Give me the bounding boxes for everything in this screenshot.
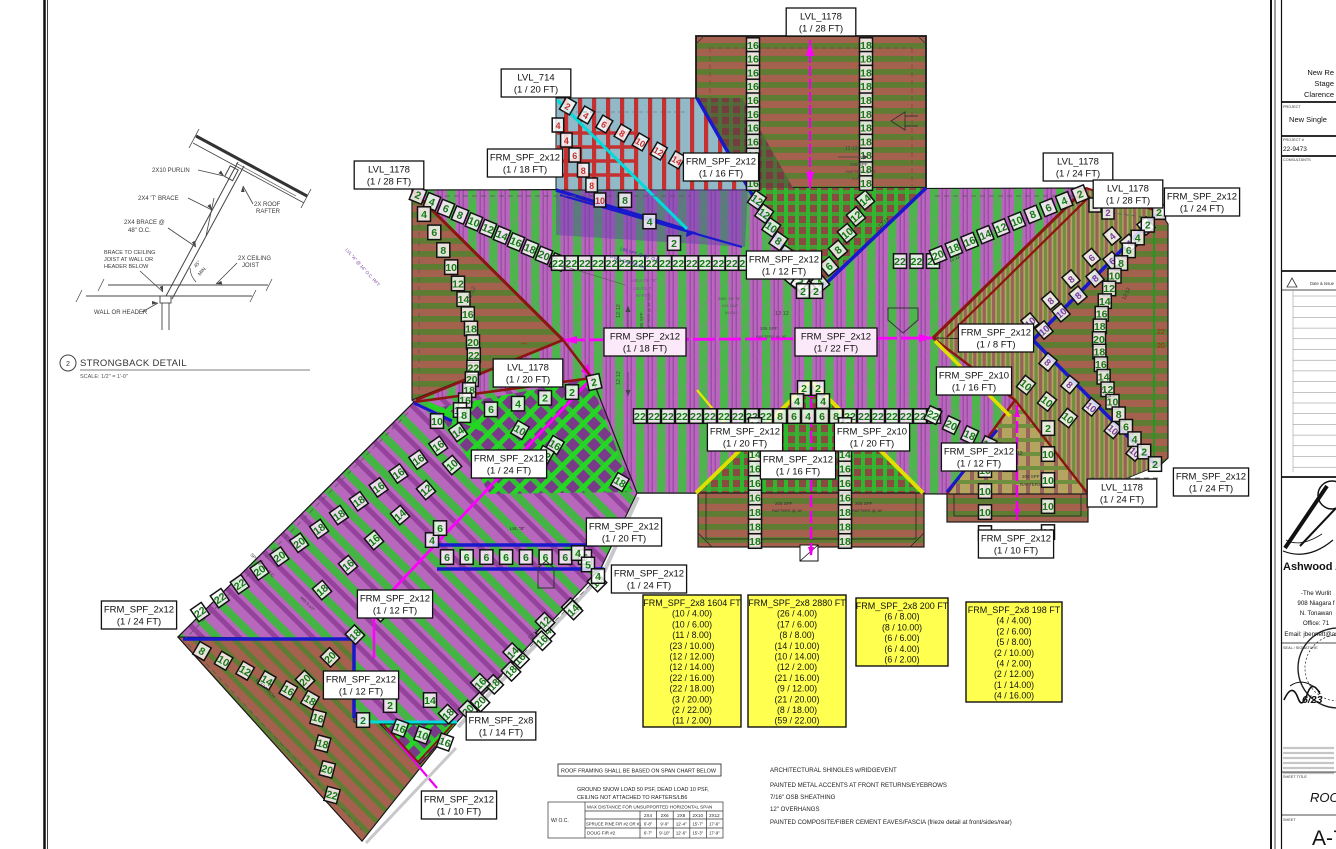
svg-text:Date & Issue: Date & Issue	[1310, 281, 1335, 286]
svg-text:22-9473: 22-9473	[1283, 146, 1307, 153]
svg-text:18: 18	[749, 507, 761, 519]
svg-text:FRM_SPF_2x12: FRM_SPF_2x12	[1176, 472, 1246, 483]
svg-text:SPRUCE PINE FIR #2 OR #1: SPRUCE PINE FIR #2 OR #1	[586, 822, 642, 827]
svg-text:18: 18	[860, 136, 872, 148]
svg-text:AREA OF "B": AREA OF "B"	[630, 278, 657, 283]
svg-text:15'-3": 15'-3"	[692, 831, 703, 836]
svg-text:FRM_SPF_2x12: FRM_SPF_2x12	[610, 332, 680, 343]
svg-text:4: 4	[647, 216, 653, 228]
svg-text:PAINTED METAL ACCENTS AT FRONT: PAINTED METAL ACCENTS AT FRONT RETURNS/E…	[770, 782, 947, 789]
svg-text:(1 / 28 FT): (1 / 28 FT)	[367, 177, 411, 188]
svg-text:6: 6	[791, 411, 797, 423]
svg-text:(4 / 4.00): (4 / 4.00)	[996, 616, 1031, 626]
svg-text:4: 4	[515, 398, 521, 410]
svg-text:8: 8	[461, 410, 467, 422]
svg-text:LVL_714: LVL_714	[517, 73, 554, 84]
svg-text:22: 22	[726, 258, 738, 270]
svg-text:(1 / 24 FT): (1 / 24 FT)	[1056, 169, 1100, 180]
svg-text:LVL_1178: LVL_1178	[368, 165, 410, 176]
svg-text:Ashwood Ar: Ashwood Ar	[1283, 561, 1336, 573]
svg-text:2: 2	[66, 361, 70, 368]
svg-text:(1 / 24 FT): (1 / 24 FT)	[1189, 484, 1233, 495]
svg-text:WALL OR HEADER: WALL OR HEADER	[94, 310, 148, 316]
svg-text:FRM_SPF_2x12: FRM_SPF_2x12	[104, 605, 174, 616]
svg-text:22: 22	[592, 258, 604, 270]
svg-text:2: 2	[815, 383, 821, 395]
svg-text:(8 / 10.00): (8 / 10.00)	[882, 622, 922, 632]
svg-text:(1 / 16 FT): (1 / 16 FT)	[699, 169, 743, 180]
svg-text:(6 / 6.00): (6 / 6.00)	[884, 633, 919, 643]
svg-text:4: 4	[564, 136, 569, 146]
svg-text:48" O.C.: 48" O.C.	[128, 228, 151, 234]
svg-text:17'-6": 17'-6"	[709, 822, 720, 827]
svg-text:(12 / 12.00): (12 / 12.00)	[670, 652, 715, 662]
svg-text:(8 / 8.00): (8 / 8.00)	[779, 630, 814, 640]
svg-text:(1 / 24 FT): (1 / 24 FT)	[487, 466, 531, 477]
svg-text:2X CEILING: 2X CEILING	[238, 256, 271, 262]
svg-text:(1 / 12 FT): (1 / 12 FT)	[762, 267, 806, 278]
svg-text:(1 / 10 FT): (1 / 10 FT)	[994, 546, 1038, 557]
svg-text:10: 10	[1042, 475, 1054, 487]
svg-text:(1 / 8 FT): (1 / 8 FT)	[976, 340, 1015, 351]
svg-text:(2 / 22.00): (2 / 22.00)	[672, 705, 712, 715]
svg-text:6: 6	[572, 151, 577, 161]
svg-text:16: 16	[747, 123, 759, 135]
svg-text:FRM_SPF_2x10: FRM_SPF_2x10	[939, 371, 1009, 382]
svg-text:(1 / 24 FT): (1 / 24 FT)	[117, 617, 161, 628]
svg-text:(1 / 16 FT): (1 / 16 FT)	[776, 467, 820, 478]
svg-text:16: 16	[747, 95, 759, 107]
svg-text:22: 22	[718, 411, 730, 423]
svg-text:12:12: 12:12	[845, 146, 858, 152]
svg-text:18: 18	[749, 521, 761, 533]
svg-text:12" OVERHANGS: 12" OVERHANGS	[770, 806, 820, 813]
svg-text:16: 16	[839, 478, 851, 490]
svg-text:(10 / 4.00): (10 / 4.00)	[672, 609, 712, 619]
svg-text:22: 22	[886, 411, 898, 423]
svg-text:MAX DISTANCE FOR UNSUPPORTED H: MAX DISTANCE FOR UNSUPPORTED HORIZONTAL …	[587, 805, 712, 810]
svg-text:RAFTERS @ 16": RAFTERS @ 16"	[852, 508, 883, 513]
svg-text:FRM_SPF_2x8 198 FT: FRM_SPF_2x8 198 FT	[968, 605, 1061, 615]
svg-text:(1 / 20 FT): (1 / 20 FT)	[602, 534, 646, 545]
svg-text:(1 / 12 FT): (1 / 12 FT)	[373, 606, 417, 617]
svg-text:12: 12	[452, 278, 464, 290]
svg-text:18: 18	[860, 178, 872, 190]
svg-text:FRM_SPF_2x12: FRM_SPF_2x12	[360, 594, 430, 605]
svg-text:A-7: A-7	[1312, 827, 1336, 849]
svg-text:(21 / 20.00): (21 / 20.00)	[775, 694, 820, 704]
svg-text:New Single: New Single	[1289, 115, 1327, 124]
svg-text:6: 6	[483, 552, 489, 564]
svg-text:PROJECT #: PROJECT #	[1283, 138, 1305, 142]
svg-text:Office: 71: Office: 71	[1303, 620, 1330, 627]
svg-text:(6 / 2.00): (6 / 2.00)	[884, 655, 919, 665]
svg-text:FRM_SPF_2x12: FRM_SPF_2x12	[614, 569, 684, 580]
svg-text:(11 / 2.00): (11 / 2.00)	[672, 716, 712, 726]
svg-text:206 SPF: 206 SPF	[639, 312, 644, 330]
svg-text:(1 / 20 FT): (1 / 20 FT)	[850, 439, 894, 450]
svg-text:(1 / 10 FT): (1 / 10 FT)	[437, 807, 481, 818]
svg-text:ROOF FRAMING SHALL BE BASED ON: ROOF FRAMING SHALL BE BASED ON SPAN CHAR…	[561, 769, 717, 775]
svg-text:FRM_SPF_2x12: FRM_SPF_2x12	[710, 427, 780, 438]
svg-text:LVL OUT: LVL OUT	[722, 303, 739, 308]
svg-text:22: 22	[676, 411, 688, 423]
svg-text:LVL_1178: LVL_1178	[800, 12, 842, 23]
svg-text:FRM_SPF_2x8 1604 FT: FRM_SPF_2x8 1604 FT	[643, 598, 741, 608]
svg-text:16: 16	[747, 109, 759, 121]
svg-text:(1 / 12 FT): (1 / 12 FT)	[957, 459, 1001, 470]
svg-text:10: 10	[595, 196, 605, 206]
svg-text:(1 / 20 FT): (1 / 20 FT)	[506, 375, 550, 386]
svg-text:N. Tonawan: N. Tonawan	[1300, 610, 1333, 617]
svg-text:(1 / 18 FT): (1 / 18 FT)	[503, 165, 547, 176]
svg-text:2: 2	[801, 383, 807, 395]
svg-text:16: 16	[747, 40, 759, 52]
svg-text:FRM_SPF_2x12: FRM_SPF_2x12	[589, 522, 659, 533]
svg-text:FRM_SPF_2x12: FRM_SPF_2x12	[749, 255, 819, 266]
svg-text:8: 8	[581, 166, 586, 176]
svg-text:FRM_SPF_2x8 2880 FT: FRM_SPF_2x8 2880 FT	[748, 598, 846, 608]
svg-text:7/16" OSB SHEATHING: 7/16" OSB SHEATHING	[770, 794, 836, 801]
svg-text:(1 / 14 FT): (1 / 14 FT)	[479, 728, 523, 739]
svg-text:22: 22	[911, 256, 923, 268]
svg-text:22: 22	[690, 411, 702, 423]
svg-text:(1 / 28 FT): (1 / 28 FT)	[1106, 196, 1150, 207]
svg-text:RAFTERS: RAFTERS	[1020, 482, 1041, 487]
svg-text:4: 4	[595, 571, 601, 583]
svg-text:RAFTERS @ 16": RAFTERS @ 16"	[846, 169, 877, 174]
svg-text:RAFTERS @ 16": RAFTERS @ 16"	[772, 508, 803, 513]
svg-text:6/23: 6/23	[1302, 694, 1323, 706]
svg-text:4: 4	[820, 396, 826, 408]
svg-text:6: 6	[464, 552, 470, 564]
svg-text:O.C.: O.C.	[852, 176, 860, 181]
svg-text:9'-9": 9'-9"	[660, 822, 669, 827]
svg-text:10: 10	[979, 507, 991, 519]
svg-text:4: 4	[805, 411, 811, 423]
svg-text:206 SPF: 206 SPF	[775, 501, 793, 506]
svg-text:ROO: ROO	[1310, 790, 1336, 805]
svg-text:22: 22	[552, 258, 564, 270]
svg-text:10: 10	[1042, 449, 1054, 461]
svg-text:LVL/OUT: LVL/OUT	[633, 286, 652, 291]
svg-text:4: 4	[1132, 434, 1138, 446]
svg-text:(10 / 14.00): (10 / 14.00)	[775, 652, 820, 662]
svg-text:(12 / 2.00): (12 / 2.00)	[777, 662, 817, 672]
svg-text:2: 2	[671, 238, 677, 250]
svg-text:(10 / 6.00): (10 / 6.00)	[672, 619, 712, 629]
svg-text:Stage: Stage	[1314, 79, 1334, 88]
svg-text:2: 2	[360, 715, 366, 727]
svg-text:16: 16	[749, 463, 761, 475]
svg-text:SHEET: SHEET	[1283, 818, 1296, 822]
svg-text:2: 2	[542, 393, 548, 405]
svg-text:16: 16	[747, 67, 759, 79]
svg-text:206 SPF: 206 SPF	[850, 162, 868, 167]
svg-text:22: 22	[732, 411, 744, 423]
svg-text:22: 22	[713, 258, 725, 270]
svg-text:22: 22	[686, 258, 698, 270]
svg-text:2X4: 2X4	[644, 813, 653, 818]
svg-text:20: 20	[1157, 343, 1165, 350]
svg-text:18: 18	[839, 507, 851, 519]
svg-text:PROJECT: PROJECT	[1283, 105, 1301, 109]
svg-text:STRONGBACK DETAIL: STRONGBACK DETAIL	[80, 358, 187, 369]
svg-text:(1 / 12 FT): (1 / 12 FT)	[339, 687, 383, 698]
svg-text:(14 / 10.00): (14 / 10.00)	[775, 641, 820, 651]
svg-text:FRM_SPF_2x12: FRM_SPF_2x12	[490, 153, 560, 164]
svg-text:FRM_SPF_2x8 200 FT: FRM_SPF_2x8 200 FT	[856, 601, 949, 611]
svg-text:2: 2	[1145, 220, 1151, 232]
svg-text:22: 22	[704, 411, 716, 423]
svg-text:16: 16	[747, 81, 759, 93]
svg-text:206 SPF: 206 SPF	[760, 326, 778, 331]
svg-text:16: 16	[747, 136, 759, 148]
svg-text:(1 / 18 FT): (1 / 18 FT)	[623, 344, 667, 355]
svg-text:FRM_SPF_2x12: FRM_SPF_2x12	[961, 328, 1031, 339]
svg-text:16: 16	[749, 478, 761, 490]
svg-text:GROUND SNOW LOAD 50 PSF, DEAD: GROUND SNOW LOAD 50 PSF, DEAD LOAD 10 PS…	[577, 787, 709, 793]
svg-text:FRM_SPF_2x12: FRM_SPF_2x12	[763, 455, 833, 466]
svg-text:4: 4	[575, 548, 581, 560]
svg-text:2: 2	[800, 286, 806, 298]
svg-text:18: 18	[860, 67, 872, 79]
svg-text:2X ROOF: 2X ROOF	[254, 202, 281, 208]
svg-text:6'-7": 6'-7"	[644, 831, 653, 836]
svg-text:(5 / 8.00): (5 / 8.00)	[996, 637, 1031, 647]
svg-text:18: 18	[860, 123, 872, 135]
svg-text:12'-6": 12'-6"	[676, 831, 687, 836]
svg-text:2X10 PURLIN: 2X10 PURLIN	[152, 168, 190, 174]
svg-text:FRM_SPF_2x12: FRM_SPF_2x12	[686, 157, 756, 168]
svg-text:2X10: 2X10	[693, 813, 704, 818]
svg-text:FRM_SPF_2x12: FRM_SPF_2x12	[981, 534, 1051, 545]
svg-text:2: 2	[569, 387, 575, 399]
svg-text:FRM_SPF_2x10: FRM_SPF_2x10	[837, 427, 907, 438]
svg-text:New Re: New Re	[1307, 68, 1334, 77]
svg-text:ARE: OF "B": ARE: OF "B"	[718, 296, 741, 301]
svg-text:10: 10	[979, 486, 991, 498]
svg-text:908 Niagara f: 908 Niagara f	[1297, 600, 1334, 607]
svg-text:(23 / 10.00): (23 / 10.00)	[670, 641, 715, 651]
svg-text:LVL_1178: LVL_1178	[1101, 483, 1143, 494]
svg-text:6: 6	[819, 411, 825, 423]
svg-text:6: 6	[431, 227, 437, 239]
svg-text:LVL_1178: LVL_1178	[507, 363, 549, 374]
svg-text:(4 / 2.00): (4 / 2.00)	[996, 659, 1031, 669]
svg-text:2: 2	[387, 700, 393, 712]
svg-text:10: 10	[431, 416, 443, 428]
svg-text:FRM_SPF_2x12: FRM_SPF_2x12	[474, 454, 544, 465]
svg-text:18: 18	[860, 81, 872, 93]
svg-text:Email: jbennett@ash: Email: jbennett@ash	[1284, 631, 1336, 638]
svg-text:6: 6	[503, 552, 509, 564]
svg-text:SCALE: 1/2" = 1'-0": SCALE: 1/2" = 1'-0"	[80, 374, 128, 380]
svg-text:(26 / 4.00): (26 / 4.00)	[777, 609, 817, 619]
svg-text:18: 18	[839, 521, 851, 533]
svg-text:22: 22	[648, 411, 660, 423]
svg-text:22: 22	[659, 258, 671, 270]
svg-text:8: 8	[777, 411, 783, 423]
svg-text:SEAL / SIGNATURE: SEAL / SIGNATURE	[1283, 646, 1318, 650]
svg-text:(1 / 24 FT): (1 / 24 FT)	[1180, 204, 1224, 215]
svg-text:2X6: 2X6	[661, 813, 670, 818]
svg-text:FRM_SPF_2x12: FRM_SPF_2x12	[424, 795, 494, 806]
svg-text:ARCHITECTURAL SHINGLES w/RIDGE: ARCHITECTURAL SHINGLES w/RIDGEVENT	[770, 767, 897, 774]
svg-text:22: 22	[673, 258, 685, 270]
svg-text:(9 / 12.00): (9 / 12.00)	[777, 684, 817, 694]
svg-text:(4 / 16.00): (4 / 16.00)	[994, 691, 1034, 701]
svg-text:CONSULTANTS: CONSULTANTS	[1283, 158, 1311, 162]
svg-text:2X12: 2X12	[709, 813, 720, 818]
svg-text:18: 18	[860, 54, 872, 66]
svg-text:16: 16	[839, 463, 851, 475]
svg-text:18: 18	[860, 95, 872, 107]
svg-text:←: ←	[520, 337, 529, 347]
svg-text:22: 22	[900, 411, 912, 423]
svg-text:22: 22	[662, 411, 674, 423]
svg-text:FRM_SPF_2x8: FRM_SPF_2x8	[469, 716, 534, 727]
svg-text:W/ O.C.: W/ O.C.	[551, 818, 569, 824]
svg-text:12:12: 12:12	[775, 311, 789, 317]
svg-text:18: 18	[860, 40, 872, 52]
svg-text:17'-9": 17'-9"	[709, 831, 720, 836]
svg-text:206 SPF: 206 SPF	[855, 501, 873, 506]
svg-text:4: 4	[555, 121, 560, 131]
svg-text:5: 5	[585, 559, 591, 571]
svg-text:2X4 BRACE @: 2X4 BRACE @	[124, 220, 165, 226]
svg-text:(1 / 14.00): (1 / 14.00)	[994, 680, 1034, 690]
svg-text:SHEET TITLE: SHEET TITLE	[1283, 775, 1307, 779]
svg-text:(2 / 12.00): (2 / 12.00)	[994, 669, 1034, 679]
svg-text:22: 22	[1157, 329, 1165, 336]
svg-text:HEADER BELOW: HEADER BELOW	[104, 264, 149, 270]
svg-text:18: 18	[860, 109, 872, 121]
svg-text:22: 22	[699, 258, 711, 270]
svg-text:2: 2	[1152, 459, 1158, 471]
svg-text:JOIST AT WALL OR: JOIST AT WALL OR	[104, 257, 153, 263]
svg-text:FRM_SPF_2x12: FRM_SPF_2x12	[1167, 192, 1237, 203]
svg-text:22: 22	[579, 258, 591, 270]
svg-text:DOUG FIR #2: DOUG FIR #2	[587, 831, 616, 836]
svg-text:(6 / 8.00): (6 / 8.00)	[884, 612, 919, 622]
svg-text:6: 6	[437, 523, 443, 535]
svg-text:(22 / 16.00): (22 / 16.00)	[670, 673, 715, 683]
svg-text:2: 2	[813, 286, 819, 298]
svg-text:(1 / 24 FT): (1 / 24 FT)	[627, 581, 671, 592]
svg-text:(3 / 20.00): (3 / 20.00)	[672, 694, 712, 704]
svg-text:-The Wurlit: -The Wurlit	[1301, 590, 1331, 597]
svg-text:22: 22	[858, 411, 870, 423]
svg-text:16: 16	[839, 492, 851, 504]
svg-text:(1 / 20 FT): (1 / 20 FT)	[723, 439, 767, 450]
svg-text:(1 / 20 FT): (1 / 20 FT)	[514, 85, 558, 96]
svg-text:18: 18	[465, 323, 477, 335]
svg-text:PAINTED COMPOSITE/FIBER CEMENT: PAINTED COMPOSITE/FIBER CEMENT EAVES/FAS…	[770, 819, 1012, 826]
svg-text:22: 22	[566, 258, 578, 270]
svg-text:(6 / 4.00): (6 / 4.00)	[884, 644, 919, 654]
svg-text:16: 16	[749, 492, 761, 504]
svg-text:LVL_1178: LVL_1178	[1107, 184, 1149, 195]
svg-text:22: 22	[894, 256, 906, 268]
svg-text:12'-4": 12'-4"	[676, 822, 687, 827]
svg-text:6: 6	[444, 552, 450, 564]
svg-text:6: 6	[488, 404, 494, 416]
svg-text:4: 4	[429, 535, 435, 547]
svg-text:4: 4	[421, 209, 427, 221]
svg-text:2: 2	[1141, 446, 1147, 458]
svg-text:6'-8": 6'-8"	[644, 822, 653, 827]
svg-text:(22 / 18.00): (22 / 18.00)	[670, 684, 715, 694]
svg-text:IN-FILL: IN-FILL	[636, 293, 652, 298]
svg-text:LVL "A" @ 16" O.C. RFT: LVL "A" @ 16" O.C. RFT	[344, 247, 381, 287]
svg-text:16: 16	[747, 54, 759, 66]
svg-text:2: 2	[1045, 423, 1051, 435]
svg-text:(8 / 18.00): (8 / 18.00)	[777, 705, 817, 715]
svg-text:18: 18	[749, 536, 761, 548]
svg-text:(17 / 6.00): (17 / 6.00)	[777, 619, 817, 629]
svg-text:18: 18	[839, 536, 851, 548]
svg-text:8: 8	[622, 195, 628, 207]
svg-text:(1 / 28 FT): (1 / 28 FT)	[799, 24, 843, 35]
svg-text:(21 / 16.00): (21 / 16.00)	[775, 673, 820, 683]
svg-text:8: 8	[589, 181, 594, 191]
svg-text:(2 / 6.00): (2 / 6.00)	[996, 626, 1031, 636]
svg-text:206 SPF: 206 SPF	[1022, 474, 1040, 479]
svg-text:(11 / 8.00): (11 / 8.00)	[672, 630, 712, 640]
svg-text:6: 6	[523, 552, 529, 564]
svg-text:14: 14	[424, 695, 436, 707]
svg-text:LVL "B": LVL "B"	[510, 526, 525, 531]
svg-text:FRM_SPF_2x12: FRM_SPF_2x12	[944, 447, 1014, 458]
svg-text:6: 6	[562, 552, 568, 564]
svg-text:LVL_1178: LVL_1178	[1057, 157, 1099, 168]
svg-text:4: 4	[794, 396, 800, 408]
svg-text:(1 / 22 FT): (1 / 22 FT)	[814, 344, 858, 355]
svg-text:9'-10": 9'-10"	[659, 831, 670, 836]
svg-text:FRM_SPF_2x12: FRM_SPF_2x12	[326, 675, 396, 686]
svg-text:16: 16	[462, 309, 474, 321]
svg-text:(1 / 16 FT): (1 / 16 FT)	[952, 383, 996, 394]
svg-text:12:12: 12:12	[616, 371, 622, 385]
svg-text:FRM_SPF_2x12: FRM_SPF_2x12	[801, 332, 871, 343]
svg-text:Clarence: Clarence	[1304, 90, 1334, 99]
svg-text:2X4 'T' BRACE: 2X4 'T' BRACE	[138, 196, 179, 202]
svg-text:8: 8	[440, 245, 446, 257]
svg-text:2X8: 2X8	[677, 813, 686, 818]
svg-text:RAFTER: RAFTER	[256, 209, 281, 215]
svg-text:(1 / 24 FT): (1 / 24 FT)	[1100, 495, 1144, 506]
svg-text:2: 2	[1105, 208, 1110, 219]
svg-text:(59 / 22.00): (59 / 22.00)	[775, 716, 820, 726]
svg-text:10: 10	[1042, 501, 1054, 513]
svg-text:IN-FILL: IN-FILL	[725, 310, 739, 315]
svg-text:10: 10	[445, 262, 457, 274]
svg-text:RAFTERS @ 16": RAFTERS @ 16"	[756, 334, 787, 339]
svg-text:(2 / 10.00): (2 / 10.00)	[994, 648, 1034, 658]
svg-text:22: 22	[872, 411, 884, 423]
svg-text:22: 22	[634, 411, 646, 423]
svg-text:CEILING NOT ATTACHED TO RAFTER: CEILING NOT ATTACHED TO RAFTERS/LB6	[577, 795, 687, 801]
svg-text:12:12: 12:12	[616, 304, 622, 318]
svg-text:BRACE TO CEILING: BRACE TO CEILING	[104, 250, 155, 256]
svg-text:15'-7": 15'-7"	[692, 822, 703, 827]
svg-text:(12 / 14.00): (12 / 14.00)	[670, 662, 715, 672]
svg-text:JOIST: JOIST	[242, 263, 259, 269]
